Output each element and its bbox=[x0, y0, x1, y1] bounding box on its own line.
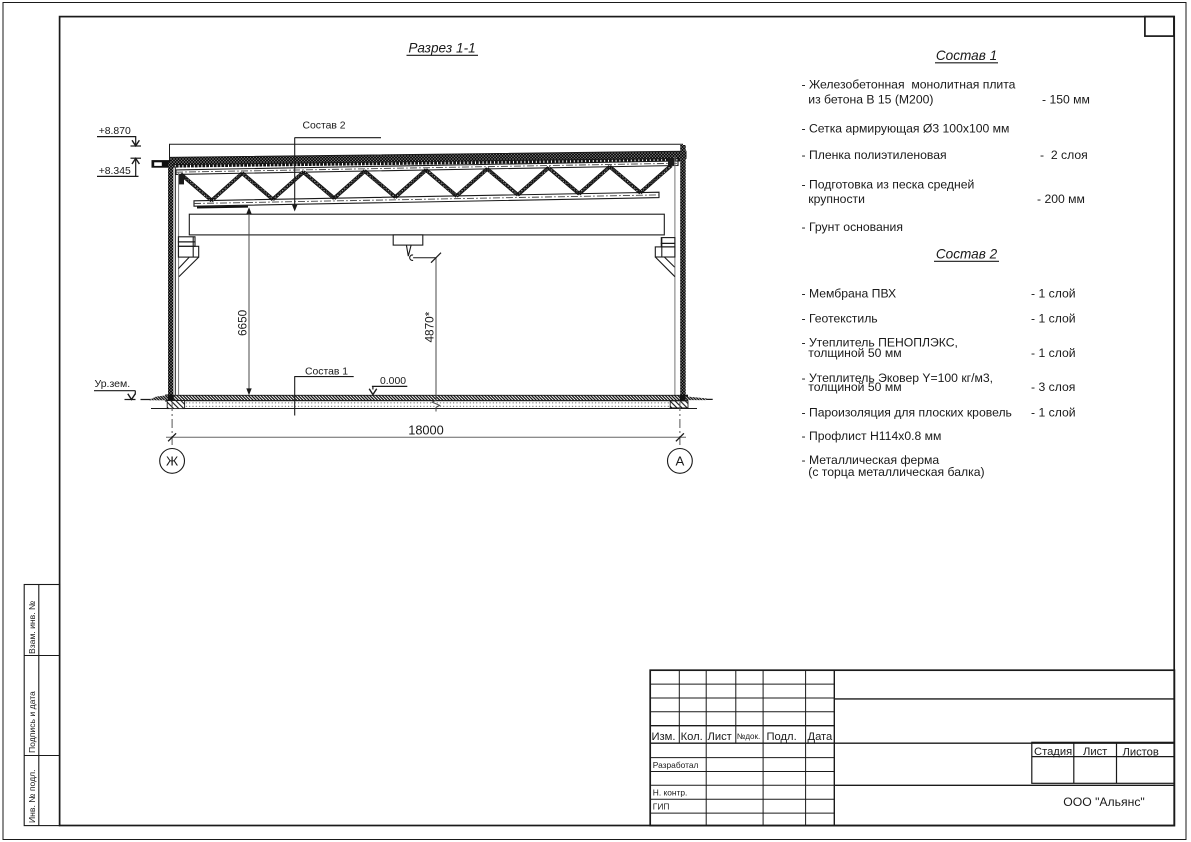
svg-text:Н. контр.: Н. контр. bbox=[653, 788, 688, 798]
svg-text:Дата: Дата bbox=[808, 731, 834, 743]
svg-text:Состав 2: Состав 2 bbox=[936, 246, 998, 261]
svg-text:- Пленка полиэтиленовая: - Пленка полиэтиленовая bbox=[802, 148, 947, 162]
svg-text:- 1 слой: - 1 слой bbox=[1031, 346, 1076, 360]
svg-text:Состав 2: Состав 2 bbox=[303, 121, 346, 132]
svg-text:- Сетка армирующая Ø3 100x100: - Сетка армирующая Ø3 100x100 мм bbox=[802, 122, 1010, 136]
svg-text:ООО "Альянс": ООО "Альянс" bbox=[1063, 795, 1145, 809]
svg-text:Разрез 1-1: Разрез 1-1 bbox=[408, 40, 475, 55]
svg-text:Кол.: Кол. bbox=[681, 731, 703, 743]
svg-text:№док.: №док. bbox=[737, 732, 760, 741]
svg-text:Подл.: Подл. bbox=[767, 731, 797, 743]
svg-text:- 200 мм: - 200 мм bbox=[1037, 192, 1085, 206]
svg-text:А: А bbox=[676, 454, 685, 469]
svg-text:Ж: Ж bbox=[166, 454, 178, 469]
svg-text:толщиной 50 мм: толщиной 50 мм bbox=[802, 380, 902, 394]
svg-text:- Грунт основания: - Грунт основания bbox=[802, 220, 903, 234]
svg-text:0.000: 0.000 bbox=[380, 376, 406, 387]
svg-text:4870*: 4870* bbox=[423, 311, 437, 342]
svg-text:- 2 слоя: - 2 слоя bbox=[1040, 148, 1088, 162]
svg-text:- Подготовка из песка средней: - Подготовка из песка средней bbox=[802, 177, 975, 191]
svg-text:Изм.: Изм. bbox=[652, 731, 676, 743]
svg-text:Лист: Лист bbox=[1083, 746, 1107, 758]
svg-text:18000: 18000 bbox=[408, 422, 444, 437]
svg-text:Инв. № подл.: Инв. № подл. bbox=[27, 769, 37, 823]
svg-text:- Мембрана ПВХ: - Мембрана ПВХ bbox=[802, 287, 897, 301]
svg-text:- Пароизоляция для плоских кро: - Пароизоляция для плоских кровель bbox=[802, 405, 1012, 419]
svg-text:(с торца металлическая балка): (с торца металлическая балка) bbox=[802, 465, 985, 479]
svg-text:Листов: Листов bbox=[1123, 746, 1159, 758]
svg-text:Состав 1: Состав 1 bbox=[936, 48, 997, 63]
svg-text:- 1 слой: - 1 слой bbox=[1031, 405, 1076, 419]
svg-text:толщиной 50 мм: толщиной 50 мм bbox=[802, 346, 902, 360]
svg-text:6650: 6650 bbox=[236, 309, 250, 336]
svg-text:из бетона В 15 (М200): из бетона В 15 (М200) bbox=[802, 92, 934, 106]
svg-text:+8.870: +8.870 bbox=[99, 126, 131, 137]
svg-text:Разработал: Разработал bbox=[653, 760, 699, 770]
svg-text:- 1 слой: - 1 слой bbox=[1031, 287, 1076, 301]
svg-text:Взам. инв. №: Взам. инв. № bbox=[27, 601, 37, 654]
svg-text:- 1 слой: - 1 слой bbox=[1031, 312, 1076, 326]
svg-text:Стадия: Стадия bbox=[1034, 746, 1072, 758]
svg-text:- Железобетонная монолитная п: - Железобетонная монолитная плита bbox=[802, 78, 1016, 92]
svg-text:- 3 слоя: - 3 слоя bbox=[1031, 380, 1075, 394]
svg-text:Состав 1: Состав 1 bbox=[305, 367, 348, 378]
svg-text:Ур.зем.: Ур.зем. bbox=[95, 378, 131, 390]
svg-text:Подпись и дата: Подпись и дата bbox=[27, 691, 37, 753]
svg-text:Лист: Лист bbox=[708, 731, 732, 743]
svg-text:- Профлист Н114x0.8 мм: - Профлист Н114x0.8 мм bbox=[802, 429, 942, 443]
svg-text:- 150 мм: - 150 мм bbox=[1042, 92, 1090, 106]
svg-text:крупности: крупности bbox=[802, 192, 865, 206]
svg-text:+8.345: +8.345 bbox=[99, 166, 131, 177]
svg-text:ГИП: ГИП bbox=[653, 802, 670, 812]
svg-text:- Геотекстиль: - Геотекстиль bbox=[802, 312, 878, 326]
